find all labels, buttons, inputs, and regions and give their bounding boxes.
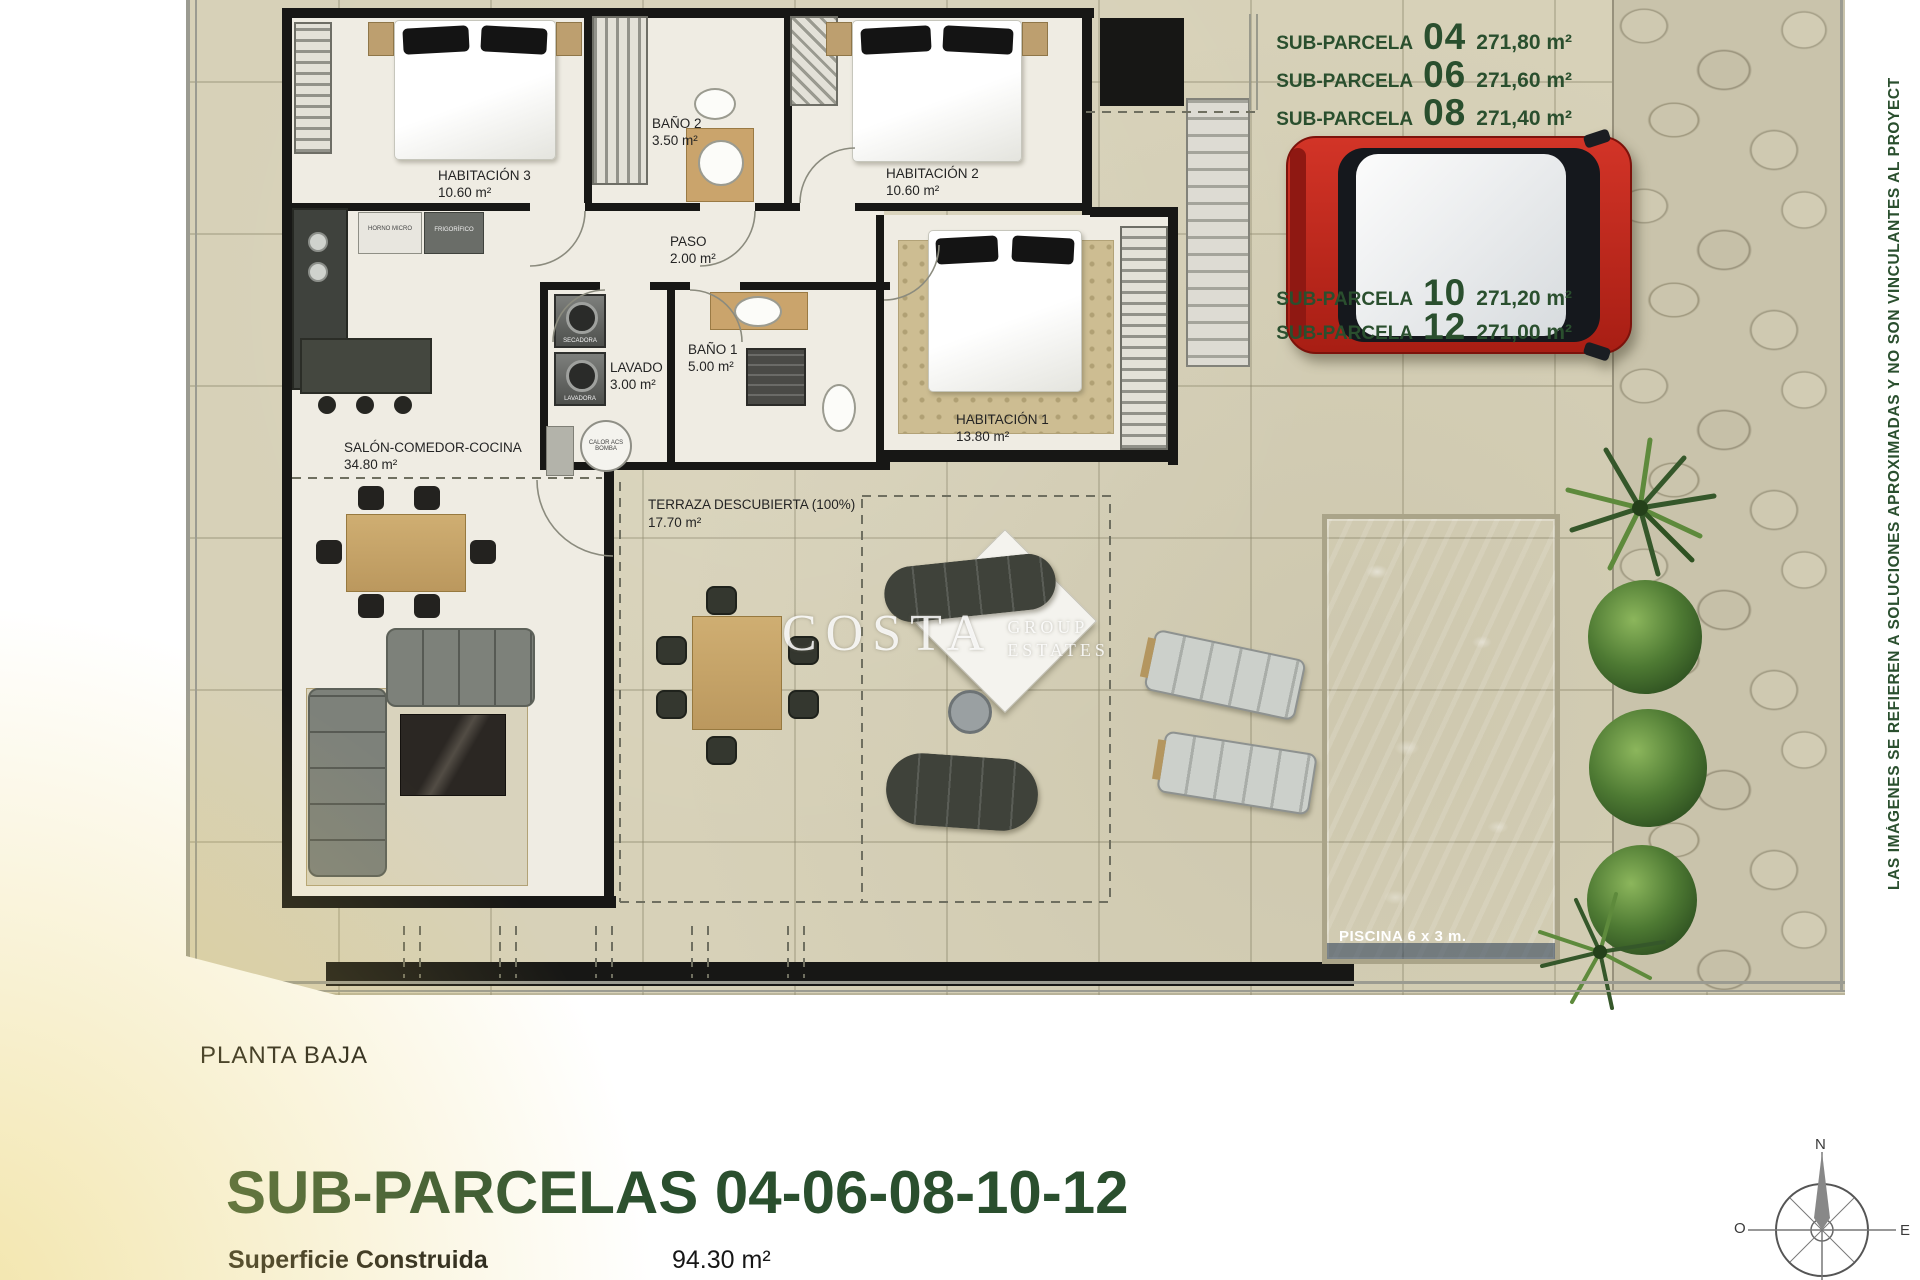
terrace-table <box>692 616 782 730</box>
wardrobe <box>1120 226 1168 450</box>
wall <box>1168 207 1178 465</box>
plan-corner-cut <box>186 956 336 995</box>
swimming-pool: PISCINA 6 x 3 m. <box>1322 514 1560 964</box>
subparcela-area: 271,80 m² <box>1476 31 1572 55</box>
water-heater-closet <box>546 426 574 476</box>
terrace-chair <box>788 690 819 719</box>
subparcela-name: SUB-PARCELA <box>1276 33 1413 55</box>
oven-label: HORNO MICRO <box>359 226 421 232</box>
stool <box>318 396 336 414</box>
dining-chair <box>358 486 384 510</box>
subparcela-number: 08 <box>1423 92 1466 134</box>
pillow <box>935 235 998 264</box>
toilet <box>822 384 856 432</box>
wall <box>282 8 292 908</box>
sofa <box>308 688 387 877</box>
room-label-habitacion-1: HABITACIÓN 1 13.80 m² <box>956 412 1049 446</box>
dining-chair <box>358 594 384 618</box>
sink <box>734 296 782 327</box>
shower-basin <box>698 140 744 186</box>
watermark-main: COSTA <box>782 608 993 660</box>
subparcela-name: SUB-PARCELA <box>1276 71 1413 93</box>
subparcela-number: 04 <box>1423 16 1466 58</box>
room-name: BAÑO 2 <box>652 116 702 133</box>
nightstand <box>368 22 394 56</box>
door-opening <box>530 203 585 211</box>
dining-chair <box>316 540 342 564</box>
door-opening <box>600 282 650 290</box>
room-area: 34.80 m² <box>344 457 522 474</box>
wall <box>584 16 592 203</box>
utility-block <box>1100 18 1184 106</box>
subparcela-number: 06 <box>1423 54 1466 96</box>
pillow <box>942 25 1013 55</box>
exterior-stairs <box>1186 98 1250 367</box>
pillow <box>480 25 547 54</box>
dining-chair <box>470 540 496 564</box>
wall <box>282 8 1094 18</box>
heat-pump-label: CALOR ACS BOMBA <box>582 440 630 453</box>
room-area: 13.80 m² <box>956 429 1049 446</box>
room-name: TERRAZA DESCUBIERTA (100%) <box>648 496 855 514</box>
pillow <box>1011 235 1074 264</box>
terrace-chair <box>706 736 737 765</box>
room-label-bano-1: BAÑO 1 5.00 m² <box>688 342 738 376</box>
washing-machine: LAVADORA <box>554 352 606 406</box>
room-area: 10.60 m² <box>438 185 531 202</box>
site-plan: PISCINA 6 x 3 m. <box>186 0 1845 995</box>
heat-pump-unit: CALOR ACS BOMBA <box>580 420 632 472</box>
stone-path <box>1612 0 1845 990</box>
room-label-habitacion-2: HABITACIÓN 2 10.60 m² <box>886 166 979 200</box>
dryer: SECADORA <box>554 294 606 348</box>
room-name: LAVADO <box>610 360 663 377</box>
room-area: 2.00 m² <box>670 251 716 268</box>
wall <box>1082 8 1092 215</box>
kitchen-island <box>300 338 432 394</box>
stool <box>394 396 412 414</box>
sofa <box>386 628 535 707</box>
subparcela-row-04: SUB-PARCELA 04 271,80 m² <box>1292 16 1572 58</box>
room-name: PASO <box>670 234 716 251</box>
terrace-chair <box>706 586 737 615</box>
watermark-sub2: ESTATES <box>1007 639 1109 662</box>
fridge-label: FRIGORÍFICO <box>425 227 483 233</box>
wardrobe <box>294 22 332 154</box>
washer-label: LAVADORA <box>556 396 604 402</box>
coffee-table <box>400 714 506 796</box>
dryer-drum <box>566 302 598 334</box>
page-title: SUB-PARCELAS 04-06-08-10-12 <box>226 1158 1129 1227</box>
stool <box>356 396 374 414</box>
room-name: HABITACIÓN 2 <box>886 166 979 183</box>
pillow <box>402 25 469 54</box>
sun-lounger <box>1143 629 1307 722</box>
bed-habitacion-3 <box>394 20 556 160</box>
subparcela-name: SUB-PARCELA <box>1276 109 1413 131</box>
nightstand <box>1022 22 1048 56</box>
washer-drum <box>566 360 598 392</box>
room-label-bano-2: BAÑO 2 3.50 m² <box>652 116 702 150</box>
dining-chair <box>414 486 440 510</box>
room-name: BAÑO 1 <box>688 342 738 359</box>
wall <box>876 215 884 462</box>
floorplan-page: PISCINA 6 x 3 m. <box>0 0 1920 1280</box>
compass-west-label: O <box>1734 1220 1746 1237</box>
kitchen-sink <box>308 232 328 252</box>
subparcela-row-08: SUB-PARCELA 08 271,40 m² <box>1292 92 1572 134</box>
wall <box>667 290 675 470</box>
subparcela-area: 271,40 m² <box>1476 107 1572 131</box>
plan-border <box>195 0 197 980</box>
door-opening <box>800 203 855 211</box>
wall <box>876 450 1178 462</box>
sun-lounger <box>1156 730 1318 815</box>
subparcela-area: 271,00 m² <box>1476 321 1572 345</box>
disclaimer-note: LAS IMÁGENES SE REFIEREN A SOLUCIONES AP… <box>1886 10 1904 890</box>
surface-value: 94.30 m² <box>672 1246 771 1275</box>
dining-chair <box>414 594 440 618</box>
room-area: 3.00 m² <box>610 377 663 394</box>
oven-microwave: HORNO MICRO <box>358 212 422 254</box>
subparcela-number: 12 <box>1423 306 1466 348</box>
dryer-label: SECADORA <box>556 338 604 344</box>
nightstand <box>556 22 582 56</box>
room-area: 17.70 m² <box>648 514 855 532</box>
room-name: SALÓN-COMEDOR-COCINA <box>344 440 522 457</box>
floor-label: PLANTA BAJA <box>200 1042 368 1070</box>
subparcela-name: SUB-PARCELA <box>1276 323 1413 345</box>
pool-label: PISCINA 6 x 3 m. <box>1339 928 1467 945</box>
wardrobe <box>592 16 648 185</box>
room-area: 5.00 m² <box>688 359 738 376</box>
watermark: COSTA GROUP ESTATES <box>782 608 1109 663</box>
wall <box>282 896 616 908</box>
room-name: HABITACIÓN 1 <box>956 412 1049 429</box>
dining-table <box>346 514 466 592</box>
plan-border <box>186 990 1845 992</box>
surface-label: Superficie Construida <box>228 1246 488 1275</box>
plan-border <box>186 981 1845 984</box>
room-area: 10.60 m² <box>886 183 979 200</box>
wall <box>604 470 614 908</box>
compass-north-label: N <box>1815 1136 1826 1153</box>
plan-border <box>1840 0 1843 992</box>
door-opening <box>700 203 755 211</box>
wall <box>1090 207 1178 217</box>
bed-habitacion-1 <box>928 230 1082 392</box>
subparcela-row-12: SUB-PARCELA 12 271,00 m² <box>1292 306 1572 348</box>
terrace-chair <box>656 690 687 719</box>
plan-border <box>186 0 190 986</box>
pillow <box>860 25 931 55</box>
outdoor-side-table <box>948 690 992 734</box>
door-opening <box>690 282 740 290</box>
bed-habitacion-2 <box>852 20 1022 162</box>
watermark-sub1: GROUP <box>1007 616 1109 639</box>
room-label-lavado: LAVADO 3.00 m² <box>610 360 663 394</box>
room-label-salon: SALÓN-COMEDOR-COCINA 34.80 m² <box>344 440 522 474</box>
compass-rose <box>1748 1152 1896 1280</box>
outdoor-sofa <box>884 751 1041 833</box>
room-label-habitacion-3: HABITACIÓN 3 10.60 m² <box>438 168 531 202</box>
room-area: 3.50 m² <box>652 133 702 150</box>
kitchen-sink <box>308 262 328 282</box>
shower <box>746 348 806 406</box>
subparcela-row-06: SUB-PARCELA 06 271,60 m² <box>1292 54 1572 96</box>
fridge: FRIGORÍFICO <box>424 212 484 254</box>
wall <box>292 203 1090 211</box>
subparcela-area: 271,60 m² <box>1476 69 1572 93</box>
compass-east-label: E <box>1900 1222 1910 1239</box>
terrace-chair <box>656 636 687 665</box>
nightstand <box>826 22 852 56</box>
room-label-terraza: TERRAZA DESCUBIERTA (100%) 17.70 m² <box>648 496 855 531</box>
room-name: HABITACIÓN 3 <box>438 168 531 185</box>
room-label-paso: PASO 2.00 m² <box>670 234 716 268</box>
